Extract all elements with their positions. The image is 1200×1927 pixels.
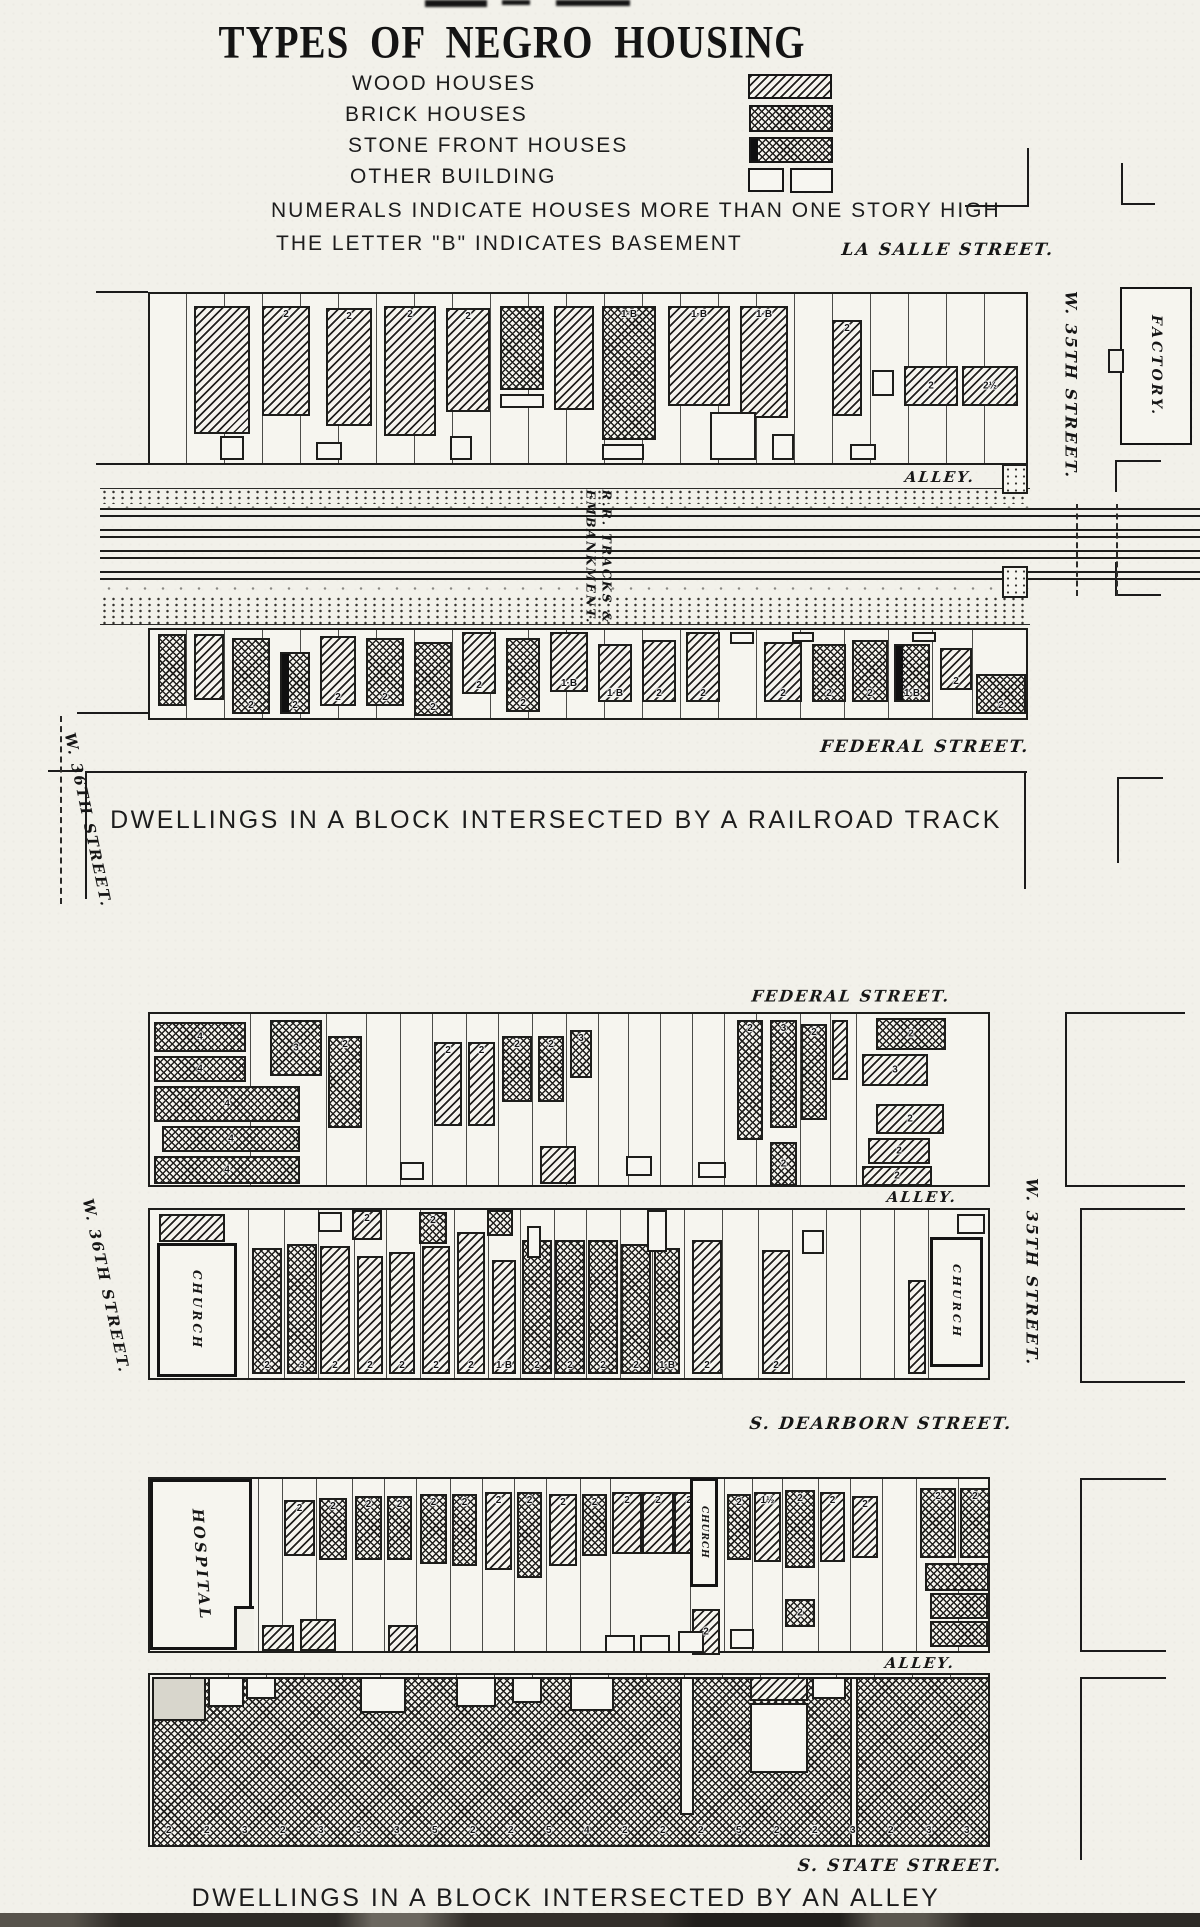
street-label-lasalle: LA SALLE STREET. bbox=[841, 240, 1056, 260]
storey-numeral: 3 bbox=[356, 1825, 362, 1836]
storey-numeral: 3 bbox=[926, 1825, 932, 1836]
lot-line bbox=[722, 1210, 723, 1378]
brick-house: 4 bbox=[154, 1022, 246, 1052]
storey-numeral: 2 bbox=[367, 1360, 373, 1371]
alley-label-3: ALLEY. bbox=[884, 1654, 956, 1672]
brick-house: 2 bbox=[770, 1142, 797, 1186]
storey-numeral: 2 bbox=[928, 381, 934, 392]
storey-numeral: 2 bbox=[830, 1495, 836, 1506]
legend-label-other: OTHER BUILDING bbox=[350, 165, 557, 189]
lot-line bbox=[932, 630, 933, 718]
storey-numeral: 2 bbox=[430, 702, 436, 713]
lot-line bbox=[186, 630, 187, 718]
wood-house: 1·B bbox=[550, 632, 588, 692]
stone-front-house: 2 bbox=[280, 652, 310, 714]
storey-numeral: 4 bbox=[228, 1134, 234, 1145]
church-building-2: CHURCH bbox=[930, 1237, 983, 1367]
wood-house: 2 bbox=[262, 306, 310, 416]
other-building bbox=[318, 1212, 342, 1232]
wood-house: 2 bbox=[686, 632, 720, 702]
storey-numeral: 2 bbox=[366, 1499, 372, 1510]
legend-label-stone: STONE FRONT HOUSES bbox=[348, 134, 628, 158]
lot-line bbox=[724, 1014, 725, 1185]
lot-line bbox=[826, 1210, 827, 1378]
legend-swatch-brick bbox=[749, 105, 833, 132]
lot-line bbox=[882, 1479, 883, 1651]
stone-front-house: 1·B bbox=[894, 644, 930, 702]
wood-house: 1½ bbox=[754, 1492, 781, 1562]
storey-numeral: 3 bbox=[299, 1360, 305, 1371]
brick-house: 2 bbox=[355, 1496, 382, 1560]
storey-numeral: 2 bbox=[430, 1215, 436, 1226]
storey-numeral: 2 bbox=[797, 1608, 803, 1619]
storey-numeral: 1·B bbox=[561, 678, 577, 689]
other-building bbox=[316, 442, 342, 460]
east-block-outline bbox=[1065, 1012, 1185, 1187]
legend-note-numerals: NUMERALS INDICATE HOUSES MORE THAN ONE S… bbox=[271, 199, 1001, 223]
block-alley-dearborn: 23222221·B22221·B2222 bbox=[148, 1208, 990, 1380]
storey-numeral: 2 bbox=[811, 1027, 817, 1038]
storey-numeral: 2 bbox=[397, 1499, 403, 1510]
lot-line bbox=[888, 630, 889, 718]
storey-numeral: 4 bbox=[224, 1099, 230, 1110]
brick-house: 3 bbox=[770, 1020, 797, 1128]
wood-house: 2 bbox=[642, 1492, 674, 1554]
brick-house: 2 bbox=[588, 1240, 618, 1374]
lot-line bbox=[916, 1479, 917, 1651]
wood-house: 1·B bbox=[740, 306, 788, 418]
other-building bbox=[730, 632, 754, 644]
other-building bbox=[360, 1677, 406, 1713]
lot-line bbox=[724, 1479, 725, 1651]
legend-label-wood: WOOD HOUSES bbox=[352, 72, 536, 96]
brick-house: 2 bbox=[876, 1018, 946, 1050]
lot-line bbox=[860, 1210, 861, 1378]
wood-house bbox=[908, 1280, 926, 1374]
scan-artifact bbox=[425, 0, 487, 7]
factory-notch bbox=[1108, 349, 1124, 373]
storey-numeral: 2 bbox=[812, 1825, 818, 1836]
storey-numeral: 2 bbox=[364, 1213, 370, 1224]
storey-numeral: 2 bbox=[445, 1045, 451, 1056]
brick-house: 2 bbox=[419, 1212, 447, 1244]
storey-numeral: 2 bbox=[600, 1360, 606, 1371]
storey-numeral: 1·B bbox=[756, 309, 772, 320]
wood-house: 2 bbox=[320, 636, 356, 706]
storey-numeral: 5 bbox=[736, 1825, 742, 1836]
storey-numeral: 2 bbox=[781, 1159, 787, 1170]
scan-artifact bbox=[556, 0, 630, 6]
street-label-federal-1: FEDERAL STREET. bbox=[819, 737, 1030, 757]
wood-house bbox=[194, 634, 224, 700]
railroad-label: R.R. TRACKS & EMBANKMENT. bbox=[582, 490, 615, 625]
storey-numeral: 3 bbox=[578, 1033, 584, 1044]
other-building bbox=[680, 1677, 694, 1815]
brick-house: 2 bbox=[737, 1020, 763, 1140]
lot-line bbox=[376, 294, 377, 463]
lot-line bbox=[680, 630, 681, 718]
brick-house: 4 bbox=[162, 1126, 300, 1152]
brick-house: 2 bbox=[452, 1494, 477, 1566]
storey-numeral: 3 bbox=[242, 1825, 248, 1836]
lot-line bbox=[758, 1210, 759, 1378]
storey-numeral: 2 bbox=[470, 1825, 476, 1836]
east-block-outline bbox=[1080, 1208, 1185, 1383]
legend-swatch-wood bbox=[748, 74, 832, 99]
brick-house: 2 bbox=[414, 642, 452, 716]
note-pointer-line bbox=[965, 205, 1027, 207]
storey-numeral: 2 bbox=[780, 688, 786, 699]
storey-numeral: 3 bbox=[964, 1825, 970, 1836]
storey-numeral: 2 bbox=[166, 1825, 172, 1836]
lot-line bbox=[546, 1479, 547, 1651]
hospital-step bbox=[234, 1606, 254, 1650]
storey-numeral: 2 bbox=[698, 1825, 704, 1836]
legend-swatch-other-1 bbox=[748, 168, 784, 192]
storey-numeral: 2 bbox=[465, 311, 471, 322]
wood-house bbox=[388, 1625, 418, 1653]
lot-line bbox=[756, 630, 757, 718]
storey-numeral: 2 bbox=[407, 309, 413, 320]
other-building bbox=[678, 1631, 704, 1653]
brick-house: 4 bbox=[154, 1086, 300, 1122]
wood-house: 2 bbox=[326, 308, 372, 426]
wood-house: 2 bbox=[762, 1250, 790, 1374]
storey-numeral: 2 bbox=[773, 1360, 779, 1371]
wood-house bbox=[832, 1020, 848, 1080]
wood-house: 2 bbox=[549, 1494, 577, 1566]
other-building bbox=[957, 1214, 985, 1234]
embankment-box bbox=[1002, 566, 1028, 598]
storey-numeral: 2 bbox=[633, 1360, 639, 1371]
lot-line bbox=[224, 630, 225, 718]
storey-numeral: 2 bbox=[656, 688, 662, 699]
wood-house: 3 bbox=[862, 1054, 928, 1086]
church-label: CHURCH bbox=[190, 1270, 204, 1350]
storey-numeral: 2 bbox=[342, 1039, 348, 1050]
wood-house: 2 bbox=[357, 1256, 383, 1374]
brick-house bbox=[930, 1621, 988, 1647]
other-building bbox=[710, 412, 756, 460]
storey-numeral: 2 bbox=[935, 1491, 941, 1502]
other-building bbox=[220, 436, 244, 460]
lot-line bbox=[284, 1210, 285, 1378]
lot-line bbox=[792, 1210, 793, 1378]
other-building bbox=[812, 1677, 846, 1699]
brick-house: 2 bbox=[785, 1490, 815, 1568]
church-building-1: CHURCH bbox=[157, 1243, 237, 1377]
brick-house: 4 bbox=[154, 1156, 300, 1184]
storey-numeral: 2 bbox=[747, 1023, 753, 1034]
east-block-outline bbox=[1080, 1478, 1166, 1652]
wood-house: 2 bbox=[852, 1496, 878, 1558]
wood-house: 2 bbox=[462, 632, 496, 694]
wood-house: 2 bbox=[820, 1492, 845, 1562]
wood-house: 2 bbox=[692, 1240, 722, 1374]
storey-numeral: 2 bbox=[399, 1360, 405, 1371]
wood-house: 2 bbox=[320, 1246, 350, 1374]
storey-numeral: 1·B bbox=[621, 309, 637, 320]
brick-house: 2 bbox=[366, 638, 404, 706]
other-building bbox=[640, 1635, 670, 1653]
brick-house: 2 bbox=[232, 638, 270, 714]
lot-line bbox=[782, 1479, 783, 1651]
storey-numeral: 2 bbox=[660, 1825, 666, 1836]
brick-house: 2 bbox=[976, 674, 1026, 714]
corner-tick bbox=[1121, 163, 1155, 205]
street-crossing-dash bbox=[1076, 504, 1078, 596]
lot-line bbox=[498, 1014, 499, 1185]
lot-line bbox=[856, 1014, 857, 1185]
brick-house: 2 bbox=[522, 1240, 552, 1374]
street-label-state: S. STATE STREET. bbox=[797, 1856, 1004, 1876]
storey-numeral: 2 bbox=[479, 1045, 485, 1056]
alley-label-2: ALLEY. bbox=[886, 1188, 958, 1206]
brick-house bbox=[487, 1210, 513, 1236]
other-building bbox=[527, 1226, 541, 1258]
brick-house: 2 bbox=[387, 1496, 412, 1560]
storey-numeral: 2 bbox=[508, 1825, 514, 1836]
block-federal-alley: 444443222223232223222 bbox=[148, 1012, 990, 1187]
storey-numeral: 2 bbox=[703, 1627, 709, 1638]
brick-house: 2 bbox=[506, 638, 540, 712]
storey-numeral: 3 bbox=[850, 1825, 856, 1836]
brick-house bbox=[930, 1593, 988, 1619]
lot-line bbox=[660, 1014, 661, 1185]
storey-numeral: 2 bbox=[520, 698, 526, 709]
lot-line bbox=[490, 294, 491, 463]
wood-house bbox=[540, 1146, 576, 1184]
wood-house: 2 bbox=[352, 1210, 382, 1240]
lot-line bbox=[894, 1210, 895, 1378]
other-building bbox=[647, 1210, 667, 1252]
storey-numeral: 5 bbox=[546, 1825, 552, 1836]
wood-house: 1·B bbox=[598, 644, 632, 702]
brick-house bbox=[500, 306, 544, 390]
brick-house: 2 bbox=[920, 1488, 956, 1558]
storey-numeral: 2 bbox=[908, 1029, 914, 1040]
other-building bbox=[512, 1677, 542, 1703]
other-building bbox=[872, 370, 894, 396]
other-building bbox=[802, 1230, 824, 1254]
storey-numeral: 2 bbox=[433, 1360, 439, 1371]
block-dearborn-alley: 2222222222222221½222222 bbox=[148, 1477, 990, 1653]
storey-numeral: 2 bbox=[888, 1825, 894, 1836]
corner-tick bbox=[96, 463, 148, 465]
wood-house bbox=[262, 1625, 294, 1651]
storey-numeral: 2 bbox=[907, 1114, 913, 1125]
storey-numeral: 2 bbox=[292, 700, 298, 711]
brick-house: 2 bbox=[502, 1036, 532, 1102]
wood-house bbox=[300, 1619, 336, 1651]
lot-line bbox=[598, 1014, 599, 1185]
storey-numeral: 2 bbox=[896, 1146, 902, 1157]
embankment-stipple-bottom bbox=[100, 596, 1030, 625]
storey-numeral: 2 bbox=[953, 676, 959, 687]
other-building bbox=[456, 1677, 496, 1707]
storey-numeral: 2 bbox=[514, 1039, 520, 1050]
other-building bbox=[570, 1677, 614, 1711]
brick-house: 2 bbox=[785, 1599, 815, 1627]
storey-numeral: 4 bbox=[197, 1064, 203, 1075]
east-block-outline bbox=[1080, 1677, 1166, 1860]
storey-numeral: 4 bbox=[197, 1032, 203, 1043]
wood-house: 1·B bbox=[668, 306, 730, 406]
legend-note-basement: THE LETTER "B" INDICATES BASEMENT bbox=[276, 232, 743, 256]
storey-numeral: 4 bbox=[584, 1825, 590, 1836]
lot-line bbox=[454, 1210, 455, 1378]
storey-numeral: 2½ bbox=[983, 381, 997, 392]
storey-numeral: 2 bbox=[998, 700, 1004, 711]
storey-numeral: 2 bbox=[622, 1825, 628, 1836]
storey-numeral: 2 bbox=[468, 1360, 474, 1371]
brick-house: 2 bbox=[420, 1494, 447, 1564]
storey-numeral: 2 bbox=[534, 1360, 540, 1371]
lot-line bbox=[352, 1479, 353, 1651]
wood-house: 2 bbox=[612, 1492, 642, 1554]
storey-numeral: 2 bbox=[624, 1495, 630, 1506]
storey-numeral: 2 bbox=[592, 1497, 598, 1508]
lot-line bbox=[482, 1479, 483, 1651]
brick-house: 2 bbox=[517, 1492, 542, 1578]
storey-numeral: 2 bbox=[704, 1360, 710, 1371]
lot-line bbox=[384, 1479, 385, 1651]
brick-house: 2 bbox=[319, 1498, 347, 1560]
other-building bbox=[208, 1677, 244, 1707]
wood-house: 2 bbox=[642, 640, 676, 702]
wood-house bbox=[194, 306, 250, 434]
factory-label: FACTORY. bbox=[1148, 315, 1164, 417]
wood-house: 2 bbox=[832, 320, 862, 416]
brick-house: 3 bbox=[287, 1244, 317, 1374]
brick-house: 2 bbox=[852, 640, 888, 702]
storey-numeral: 2 bbox=[862, 1499, 868, 1510]
embankment-box bbox=[1002, 464, 1028, 494]
other-building bbox=[730, 1629, 754, 1649]
other-building bbox=[626, 1156, 652, 1176]
storey-numeral: 1·B bbox=[607, 688, 623, 699]
storey-numeral: 2 bbox=[527, 1495, 533, 1506]
storey-numeral: 3 bbox=[394, 1825, 400, 1836]
lot-line bbox=[258, 1479, 259, 1651]
scan-artifact-bottom bbox=[0, 1913, 1200, 1927]
wood-house: 2 bbox=[876, 1104, 944, 1134]
other-building bbox=[450, 436, 472, 460]
lot-line bbox=[532, 1014, 533, 1185]
church-label: CHURCH bbox=[699, 1506, 709, 1559]
lot-line bbox=[186, 294, 187, 463]
storey-numeral: 5 bbox=[432, 1825, 438, 1836]
lot-line bbox=[400, 1014, 401, 1185]
brick-house: 2 bbox=[801, 1024, 827, 1120]
brick-house bbox=[158, 634, 186, 706]
block-alley-state: 2232333522542225223233 bbox=[148, 1673, 990, 1847]
wood-house bbox=[159, 1214, 225, 1242]
caption-railroad-block: DWELLINGS IN A BLOCK INTERSECTED BY A RA… bbox=[110, 806, 1002, 835]
storey-numeral: 1·B bbox=[496, 1360, 512, 1371]
alley-label-1: ALLEY. bbox=[904, 468, 976, 486]
street-label-federal-2: FEDERAL STREET. bbox=[751, 987, 952, 1006]
brick-house bbox=[925, 1563, 989, 1591]
wood-house: 2 bbox=[457, 1232, 485, 1374]
other-building bbox=[912, 632, 936, 642]
brick-house: 2 bbox=[555, 1240, 585, 1374]
scan-artifact bbox=[502, 0, 530, 5]
other-building bbox=[850, 1677, 858, 1847]
wood-house: 2 bbox=[940, 648, 972, 690]
storey-numeral: 2 bbox=[655, 1495, 661, 1506]
corner-tick bbox=[1115, 460, 1161, 492]
storey-numeral: 2 bbox=[774, 1825, 780, 1836]
brick-house: 2 bbox=[621, 1244, 651, 1374]
brick-house: 2 bbox=[252, 1248, 282, 1374]
storey-numeral: 2 bbox=[972, 1491, 978, 1502]
storey-numeral: 3 bbox=[293, 1043, 299, 1054]
storey-numeral: 2 bbox=[264, 1360, 270, 1371]
corner-tick bbox=[1117, 777, 1163, 863]
wood-house: 2 bbox=[904, 366, 958, 406]
storey-numeral: 1·B bbox=[904, 688, 920, 699]
other-building bbox=[500, 394, 544, 408]
other-building bbox=[605, 1635, 635, 1653]
caption-alley-block: DWELLINGS IN A BLOCK INTERSECTED BY AN A… bbox=[192, 1884, 941, 1913]
street-label-dearborn: S. DEARBORN STREET. bbox=[748, 1414, 1013, 1434]
corner-tick bbox=[1027, 148, 1029, 207]
storey-numeral: 2 bbox=[248, 700, 254, 711]
church-label: CHURCH bbox=[950, 1264, 963, 1339]
brick-house: 3 bbox=[270, 1020, 322, 1076]
wood-house bbox=[750, 1677, 808, 1701]
wood-house: 2 bbox=[468, 1042, 495, 1126]
legend-swatch-other-2 bbox=[790, 168, 833, 193]
street-label-w36th-north: W. 36TH STREET. bbox=[61, 731, 116, 909]
storey-numeral: 2 bbox=[560, 1497, 566, 1508]
legend-label-brick: BRICK HOUSES bbox=[345, 103, 528, 127]
lot-line bbox=[684, 1210, 685, 1378]
storey-numeral: 2 bbox=[826, 688, 832, 699]
wood-house: 2 bbox=[422, 1246, 450, 1374]
church-building-3: CHURCH bbox=[690, 1478, 718, 1587]
embankment-stipple-top bbox=[100, 488, 1030, 504]
storey-numeral: 2 bbox=[382, 692, 388, 703]
wood-house: 2 bbox=[384, 306, 436, 436]
storey-numeral: 2 bbox=[567, 1360, 573, 1371]
brick-house: 2 bbox=[328, 1036, 362, 1128]
caption-block-right bbox=[1024, 771, 1026, 889]
caption-block-top bbox=[85, 771, 1027, 773]
embankment-stipple bbox=[100, 584, 1030, 596]
storey-numeral: 2 bbox=[204, 1825, 210, 1836]
storey-numeral: 2 bbox=[867, 688, 873, 699]
storey-numeral: 2 bbox=[476, 680, 482, 691]
other-building bbox=[246, 1677, 276, 1699]
storey-numeral: 2 bbox=[280, 1825, 286, 1836]
storey-numeral: 2 bbox=[844, 323, 850, 334]
brick-house: 4 bbox=[154, 1056, 246, 1082]
other-building bbox=[698, 1162, 726, 1178]
storey-numeral: 2 bbox=[462, 1497, 468, 1508]
storey-numeral: 3 bbox=[318, 1825, 324, 1836]
storey-numeral: 1½ bbox=[761, 1495, 775, 1506]
storey-numeral: 2 bbox=[346, 311, 352, 322]
storey-numeral: 2 bbox=[283, 309, 289, 320]
railroad-tracks bbox=[100, 508, 1200, 592]
storey-numeral: 2 bbox=[496, 1495, 502, 1506]
wood-house: 2 bbox=[485, 1492, 512, 1570]
storey-numeral: 2 bbox=[548, 1039, 554, 1050]
other-building bbox=[750, 1703, 808, 1773]
street-label-w36th-south: W. 36TH STREET. bbox=[79, 1197, 134, 1375]
